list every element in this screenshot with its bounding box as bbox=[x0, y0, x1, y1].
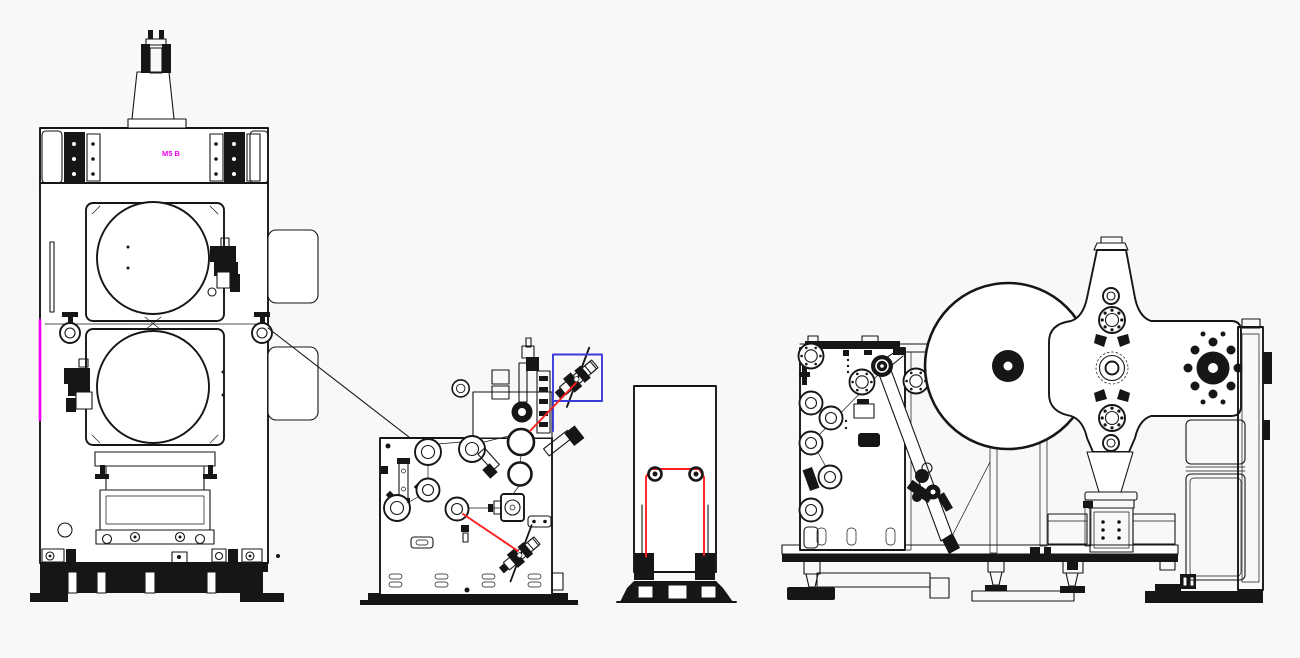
winder-roller bbox=[799, 344, 824, 369]
winder-base-plate-right bbox=[1145, 591, 1263, 603]
coater-roller bbox=[384, 495, 410, 521]
machine-label: M5 B bbox=[162, 149, 181, 158]
coating-roll-lower bbox=[509, 463, 532, 486]
coating-roll-upper bbox=[508, 429, 534, 455]
lower-roll bbox=[97, 331, 209, 443]
winder-roller bbox=[800, 432, 823, 455]
side-tab-upper bbox=[268, 230, 318, 303]
coater-roller bbox=[417, 479, 440, 502]
lower-roll-housing bbox=[86, 329, 224, 445]
machine-layout-drawing: M5 B bbox=[0, 0, 1300, 658]
winder-roller bbox=[819, 466, 842, 489]
coater-roller bbox=[415, 439, 441, 465]
machine-roll-press[interactable]: M5 B bbox=[30, 30, 318, 602]
winder-platform bbox=[817, 573, 930, 587]
winder-roller bbox=[800, 499, 823, 522]
slitter-unit-highlighted[interactable] bbox=[547, 348, 609, 407]
guide-roller-right bbox=[252, 312, 272, 343]
pedestal-step-right bbox=[1133, 514, 1175, 544]
machine-turret-winder[interactable] bbox=[782, 237, 1272, 603]
coater-roller bbox=[446, 498, 469, 521]
pedestal-step-left bbox=[1048, 514, 1087, 544]
press-feet bbox=[30, 563, 284, 602]
cad-viewport: M5 B bbox=[0, 0, 1300, 658]
machine-coating-unit[interactable] bbox=[360, 338, 609, 605]
upper-roll-housing bbox=[86, 202, 224, 321]
winder-foot-pad-left bbox=[787, 587, 835, 600]
side-tab-lower bbox=[268, 347, 318, 420]
hydraulic-cylinder bbox=[128, 30, 186, 128]
winder-roller bbox=[850, 370, 875, 395]
winder-roller bbox=[820, 407, 843, 430]
winder-roller bbox=[800, 392, 823, 415]
machine-accumulator-stand[interactable] bbox=[617, 386, 736, 602]
guide-roller-left bbox=[60, 312, 80, 343]
winder-bottom-plate bbox=[972, 591, 1074, 601]
upper-roll bbox=[97, 202, 209, 314]
winder-feet bbox=[804, 557, 1196, 593]
coater-base-plate bbox=[360, 600, 578, 605]
winder-base-bar bbox=[782, 554, 1178, 562]
